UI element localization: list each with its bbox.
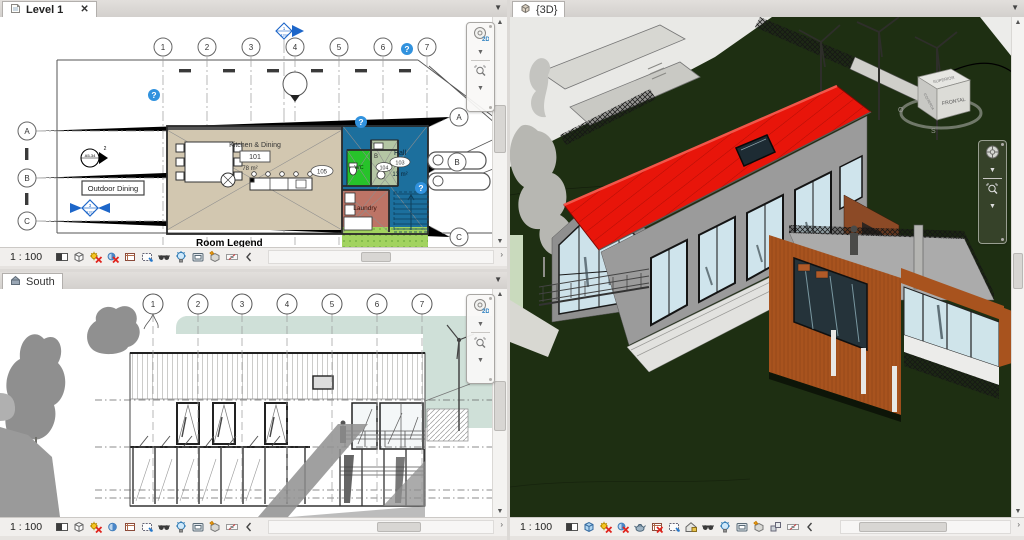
- wheel-menu-caret[interactable]: ▼: [477, 49, 484, 56]
- svg-text:1: 1: [161, 43, 166, 52]
- vscroll-thumb[interactable]: [494, 105, 506, 153]
- svg-text:Laundry: Laundry: [353, 205, 377, 212]
- wheel-menu-caret[interactable]: ▼: [989, 167, 996, 174]
- tab-label: Level 1: [26, 4, 63, 16]
- tab-overflow-chevron-icon[interactable]: ▼: [1011, 4, 1019, 12]
- svg-text:Kitchen & Dining: Kitchen & Dining: [229, 142, 281, 149]
- 3d-tabbar: {3D} ▼: [510, 0, 1024, 18]
- level1-plan-drawing: 1 2 3 4 5 6 7 A B C A B C: [0, 17, 507, 247]
- svg-text:7: 7: [425, 43, 430, 52]
- svg-text:101: 101: [249, 154, 261, 161]
- crop-view-off-icon[interactable]: [649, 520, 664, 535]
- steering-wheel-2d-icon[interactable]: 2D: [472, 298, 489, 320]
- zoom-tool-icon[interactable]: [985, 182, 1000, 202]
- tab-label: South: [26, 276, 55, 288]
- wheel-menu-caret[interactable]: ▼: [477, 321, 484, 328]
- svg-text:4: 4: [293, 43, 298, 52]
- tab-south[interactable]: South: [2, 273, 63, 289]
- svg-text:?: ?: [151, 90, 156, 100]
- temp-view-properties-icon[interactable]: [190, 250, 205, 265]
- detail-level-icon[interactable]: [54, 250, 69, 265]
- unlocked-3d-icon[interactable]: [683, 520, 698, 535]
- svg-text:2: 2: [104, 146, 107, 152]
- callout-marker[interactable]: 3 A102: [70, 200, 110, 216]
- zoom-tool-icon[interactable]: [473, 64, 488, 84]
- scale-button[interactable]: 1 : 100: [10, 251, 42, 263]
- hide-isolate-glasses-icon[interactable]: [156, 520, 171, 535]
- hscroll-right-arrow[interactable]: ›: [500, 521, 503, 529]
- 3d-canvas[interactable]: O S SUPERIOR IZQUIERDA FRONTAL ▲ ▼: [510, 17, 1024, 517]
- highlight-displacement-icon[interactable]: [207, 250, 222, 265]
- svg-text:78 m²: 78 m²: [242, 166, 257, 172]
- highlight-displacement-icon[interactable]: [207, 520, 222, 535]
- svg-text:103: 103: [395, 161, 404, 167]
- hscroll-thumb[interactable]: [859, 522, 947, 532]
- close-icon[interactable]: ✕: [80, 4, 88, 15]
- svg-text:S: S: [931, 128, 936, 135]
- level1-tabbar: Level 1 ✕ ▼: [0, 0, 507, 18]
- svg-text:2: 2: [196, 300, 201, 309]
- hscroll-right-arrow[interactable]: ›: [500, 251, 503, 259]
- svg-text:B: B: [454, 158, 459, 167]
- panel-south: South ▼: [0, 272, 507, 540]
- svg-text:1: 1: [151, 300, 156, 309]
- svg-text:Outdoor Dining: Outdoor Dining: [88, 184, 138, 193]
- svg-text:O: O: [898, 107, 904, 114]
- outdoor-dining-label: Outdoor Dining: [82, 181, 144, 195]
- crop-region-icon[interactable]: [139, 250, 154, 265]
- tab-overflow-chevron-icon[interactable]: ▼: [494, 4, 502, 12]
- hide-isolate-glasses-icon[interactable]: [700, 520, 715, 535]
- level1-canvas[interactable]: 1 2 3 4 5 6 7 A B C A B C: [0, 17, 507, 247]
- svg-text:?: ?: [358, 117, 363, 127]
- sun-path-off-icon[interactable]: [88, 520, 103, 535]
- shadows-off-icon[interactable]: [615, 520, 630, 535]
- sun-path-off-icon[interactable]: [88, 250, 103, 265]
- section-marker[interactable]: A5-34 2: [81, 146, 108, 167]
- svg-text:104: 104: [380, 166, 389, 172]
- reveal-hidden-bulb-icon[interactable]: [717, 520, 732, 535]
- svg-text:A: A: [456, 113, 462, 122]
- reveal-constraints-icon[interactable]: [224, 250, 239, 265]
- tab-level1[interactable]: Level 1 ✕: [2, 1, 97, 17]
- shadows-off-icon[interactable]: [105, 250, 120, 265]
- scale-button[interactable]: 1 : 100: [10, 521, 42, 533]
- svg-text:C: C: [456, 233, 462, 242]
- tree-marker: [283, 72, 307, 102]
- reveal-hidden-bulb-icon[interactable]: [173, 520, 188, 535]
- svg-text:6: 6: [381, 43, 386, 52]
- hide-isolate-glasses-icon[interactable]: [156, 250, 171, 265]
- svg-text:4: 4: [285, 300, 290, 309]
- zoom-menu-caret[interactable]: ▼: [989, 203, 996, 210]
- tab-label: {3D}: [536, 4, 557, 16]
- view-control-icons: [564, 520, 817, 535]
- south-view-control-bar: 1 : 100 ›: [0, 517, 507, 536]
- svg-text:Hall: Hall: [394, 150, 407, 157]
- reveal-constraints-icon[interactable]: [224, 520, 239, 535]
- crop-region-icon[interactable]: [666, 520, 681, 535]
- zoom-menu-caret[interactable]: ▼: [477, 85, 484, 92]
- tab-3d[interactable]: {3D}: [512, 1, 565, 17]
- collapse-chevron-icon[interactable]: [802, 520, 817, 535]
- view-control-icons: [54, 250, 256, 265]
- svg-text:6: 6: [375, 300, 380, 309]
- panel-divider-vertical[interactable]: [507, 0, 510, 540]
- vscroll-thumb[interactable]: [1013, 253, 1023, 289]
- svg-text:3: 3: [249, 43, 254, 52]
- svg-text:WC: WC: [354, 165, 363, 171]
- svg-text:?: ?: [418, 183, 423, 193]
- panel-divider-horizontal[interactable]: [0, 269, 507, 272]
- zoom-menu-caret[interactable]: ▼: [477, 357, 484, 364]
- svg-text:?: ?: [404, 44, 409, 54]
- svg-text:5: 5: [337, 43, 342, 52]
- 3d-perspective-drawing: O S SUPERIOR IZQUIERDA FRONTAL: [510, 17, 1012, 517]
- svg-text:A5-34: A5-34: [85, 153, 96, 158]
- svg-text:5: 5: [330, 300, 335, 309]
- svg-text:3: 3: [240, 300, 245, 309]
- level1-navigation-bar[interactable]: 2D ▼ ▼: [466, 22, 495, 112]
- reveal-constraints-icon[interactable]: [785, 520, 800, 535]
- collapse-chevron-icon[interactable]: [241, 520, 256, 535]
- visual-style-icon[interactable]: [71, 520, 86, 535]
- svg-text:2D: 2D: [482, 37, 489, 43]
- building-elevation: [130, 353, 425, 506]
- visual-style-3d-icon[interactable]: [581, 520, 596, 535]
- temp-view-properties-icon[interactable]: [734, 520, 749, 535]
- svg-text:2D: 2D: [482, 309, 489, 315]
- svg-text:13 m²: 13 m²: [392, 172, 407, 178]
- grid-bubbles[interactable]: 1 2 3 4 5 6 7: [143, 294, 432, 314]
- crop-view-icon[interactable]: [122, 250, 137, 265]
- level1-view-control-bar: 1 : 100 ›: [0, 247, 507, 266]
- south-canvas[interactable]: 1 2 3 4 5 6 7 ▲ ▼ 2D ▼: [0, 289, 507, 517]
- 3d-vscrollbar[interactable]: ▲ ▼: [1011, 17, 1024, 517]
- detail-level-icon[interactable]: [54, 520, 69, 535]
- hscroll-thumb[interactable]: [377, 522, 421, 532]
- temp-view-properties-icon[interactable]: [190, 520, 205, 535]
- crop-view-icon[interactable]: [122, 520, 137, 535]
- view-control-icons: [54, 520, 256, 535]
- svg-text:A102: A102: [86, 211, 94, 215]
- svg-text:2: 2: [205, 43, 210, 52]
- svg-text:105: 105: [317, 170, 328, 176]
- steering-wheel-icon[interactable]: [984, 144, 1001, 166]
- vscroll-thumb[interactable]: [494, 381, 506, 431]
- svg-text:B: B: [374, 154, 378, 160]
- highlight-displacement-icon[interactable]: [751, 520, 766, 535]
- elevation-view-icon: [10, 275, 21, 289]
- south-elevation-drawing: 1 2 3 4 5 6 7: [0, 289, 507, 517]
- room-legend-title: Room Legend: [196, 238, 263, 247]
- elevation-marker[interactable]: 1 A104: [276, 23, 304, 39]
- svg-text:C: C: [24, 217, 30, 226]
- scale-button[interactable]: 1 : 100: [520, 521, 552, 533]
- steering-wheel-2d-icon[interactable]: 2D: [472, 26, 489, 48]
- level1-hscrollbar[interactable]: [268, 250, 494, 264]
- tab-overflow-chevron-icon[interactable]: ▼: [494, 276, 502, 284]
- floor-plan-icon: [10, 3, 21, 17]
- collapse-chevron-icon[interactable]: [241, 250, 256, 265]
- crop-region-icon[interactable]: [139, 520, 154, 535]
- svg-text:B: B: [24, 174, 29, 183]
- shadows-on-icon[interactable]: [105, 520, 120, 535]
- panel-level1: Level 1 ✕ ▼: [0, 0, 507, 269]
- south-tabbar: South ▼: [0, 272, 507, 290]
- south-hscrollbar[interactable]: [268, 520, 494, 534]
- 3d-hscrollbar[interactable]: [840, 520, 1011, 534]
- 3d-view-control-bar: 1 : 100 ›: [510, 517, 1024, 536]
- revit-workspace: Level 1 ✕ ▼: [0, 0, 1024, 540]
- svg-text:A104: A104: [280, 34, 288, 38]
- reveal-hidden-bulb-icon[interactable]: [173, 250, 188, 265]
- displace-elements-icon[interactable]: [768, 520, 783, 535]
- rendering-icon[interactable]: [632, 520, 647, 535]
- south-navigation-bar[interactable]: 2D ▼ ▼: [466, 294, 495, 384]
- 3d-view-icon: [520, 3, 531, 17]
- zoom-tool-icon[interactable]: [473, 336, 488, 356]
- grid-bubbles-top[interactable]: 1 2 3 4 5 6 7: [154, 38, 436, 56]
- hscroll-right-arrow[interactable]: ›: [1017, 521, 1020, 529]
- detail-level-icon[interactable]: [564, 520, 579, 535]
- svg-text:7: 7: [420, 300, 425, 309]
- 3d-navigation-bar[interactable]: ▼ ▼: [978, 140, 1007, 244]
- panel-3d: {3D} ▼: [510, 0, 1024, 540]
- visual-style-icon[interactable]: [71, 250, 86, 265]
- hscroll-thumb[interactable]: [361, 252, 391, 262]
- sun-path-off-icon[interactable]: [598, 520, 613, 535]
- svg-text:A: A: [24, 127, 30, 136]
